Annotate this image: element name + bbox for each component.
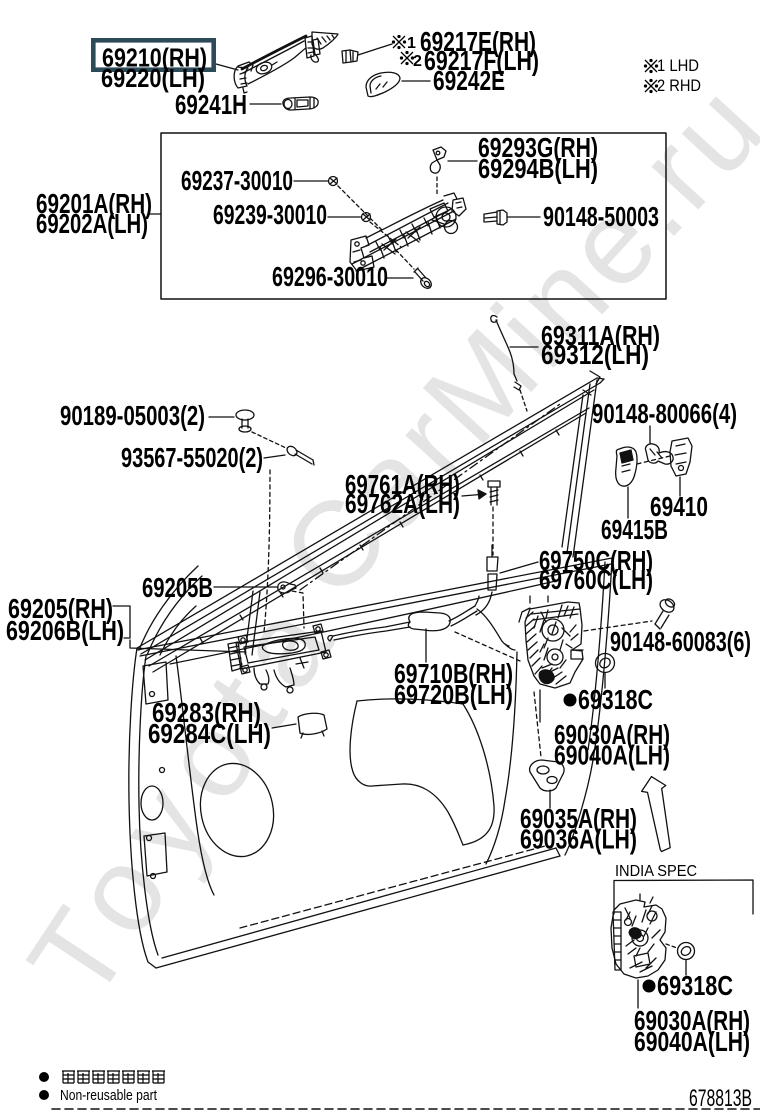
- svg-text:93567-55020(2): 93567-55020(2): [121, 442, 263, 473]
- svg-text:69762A(LH): 69762A(LH): [345, 488, 460, 519]
- svg-text:69237-30010: 69237-30010: [181, 165, 293, 196]
- svg-text:69318C: 69318C: [578, 684, 653, 715]
- svg-text:69206B(LH): 69206B(LH): [6, 615, 124, 646]
- svg-text:678813B: 678813B: [689, 1085, 752, 1112]
- svg-text:69318C: 69318C: [657, 970, 733, 1001]
- svg-text:69239-30010: 69239-30010: [213, 199, 327, 230]
- svg-text:69284C(LH): 69284C(LH): [148, 718, 271, 749]
- svg-text:90148-60083(6): 90148-60083(6): [610, 626, 751, 657]
- svg-text:69720B(LH): 69720B(LH): [394, 679, 513, 710]
- svg-text:Non-reusable part: Non-reusable part: [60, 1087, 158, 1104]
- svg-text:2 RHD: 2 RHD: [657, 76, 701, 95]
- svg-text:1: 1: [407, 35, 416, 52]
- svg-text:69040A(LH): 69040A(LH): [634, 1026, 750, 1057]
- svg-text:69241H: 69241H: [175, 89, 247, 120]
- svg-text:90189-05003(2): 90189-05003(2): [60, 400, 205, 431]
- svg-text:2: 2: [413, 53, 422, 70]
- svg-text:INDIA SPEC: INDIA SPEC: [615, 863, 697, 880]
- svg-text:69202A(LH): 69202A(LH): [36, 208, 148, 239]
- svg-text:69294B(LH): 69294B(LH): [478, 153, 598, 184]
- svg-text:69242E: 69242E: [433, 65, 505, 96]
- svg-text:90148-80066(4): 90148-80066(4): [592, 398, 737, 429]
- svg-text:69205B: 69205B: [142, 572, 213, 603]
- svg-text:69415B: 69415B: [601, 514, 668, 545]
- svg-text:69760C(LH): 69760C(LH): [539, 564, 653, 595]
- svg-text:90148-50003: 90148-50003: [543, 201, 659, 232]
- svg-text:69036A(LH): 69036A(LH): [520, 823, 637, 854]
- svg-text:69312(LH): 69312(LH): [541, 339, 649, 370]
- svg-text:69040A(LH): 69040A(LH): [554, 740, 670, 771]
- svg-text:69296-30010: 69296-30010: [272, 261, 388, 292]
- svg-text:1 LHD: 1 LHD: [657, 56, 699, 75]
